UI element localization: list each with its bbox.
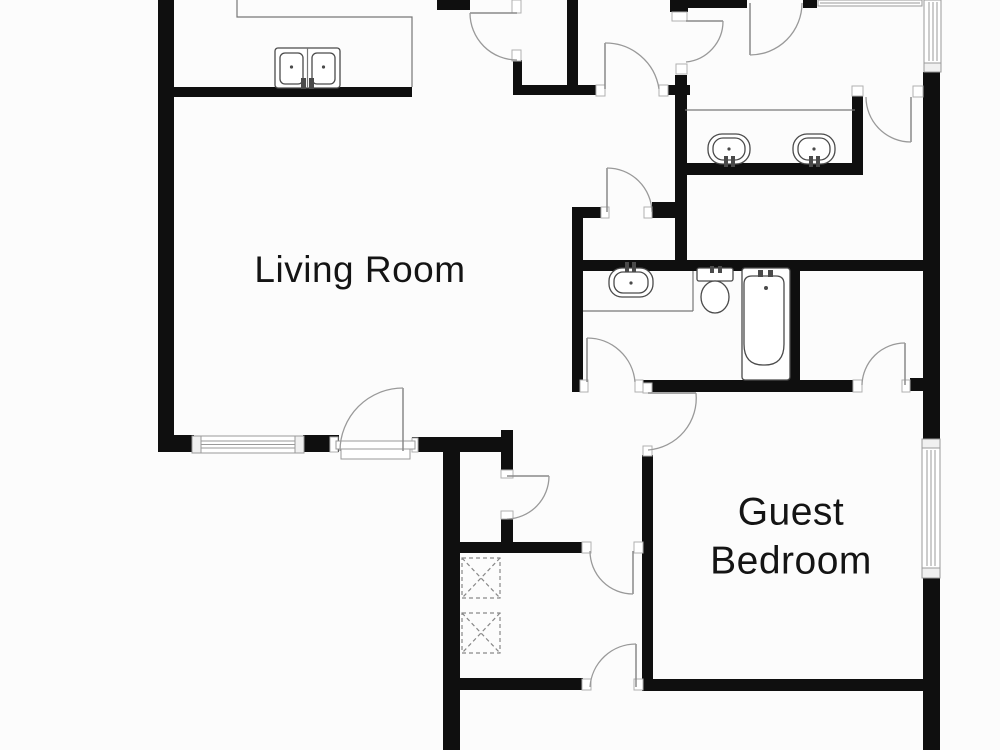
door-laundry-room bbox=[590, 551, 633, 594]
kitchen-sink bbox=[275, 48, 340, 89]
door-hall-bathroom bbox=[587, 338, 635, 382]
vanity-sink-right bbox=[793, 134, 835, 167]
walls bbox=[158, 0, 940, 750]
door-master-bath-west bbox=[686, 21, 723, 62]
living-room-label: Living Room bbox=[254, 249, 465, 291]
floor-plan: Living Room Guest Bedroom bbox=[0, 0, 1000, 750]
door-guest-bedroom bbox=[648, 393, 696, 450]
toilet bbox=[697, 266, 733, 313]
door-closet-north bbox=[866, 97, 911, 142]
door-jambs bbox=[330, 0, 923, 690]
door-walk-in-closet bbox=[862, 343, 905, 385]
door-hall-north bbox=[605, 43, 659, 89]
door-master-bath-north bbox=[750, 3, 802, 55]
door-pantry bbox=[470, 13, 517, 60]
vanity-sink-left bbox=[708, 134, 750, 167]
bathtub bbox=[742, 268, 790, 380]
door-rear-hall bbox=[590, 644, 636, 687]
dryer-box bbox=[462, 613, 500, 653]
window-top-right bbox=[924, 0, 941, 72]
door-linen-closet bbox=[607, 168, 652, 212]
window-top-strip bbox=[818, 0, 922, 6]
guest-bedroom-label: Guest Bedroom bbox=[671, 488, 911, 586]
window-guest-bedroom bbox=[922, 439, 940, 578]
door-entry bbox=[336, 388, 415, 459]
window-living-room bbox=[192, 436, 304, 453]
floor-plan-drawing bbox=[0, 0, 1000, 750]
washer-box bbox=[462, 558, 500, 598]
